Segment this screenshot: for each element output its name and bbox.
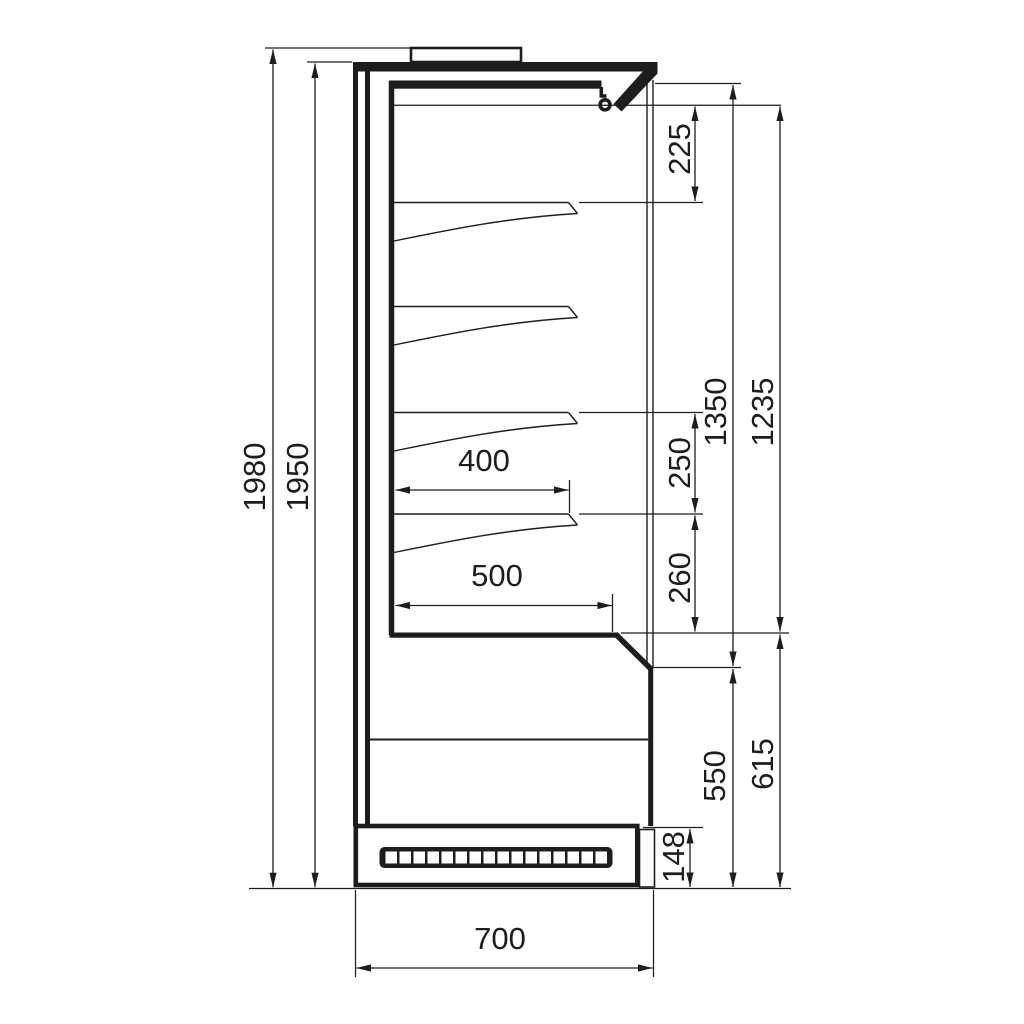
- grille-slot: [540, 852, 552, 864]
- dimension-overall-height: 1980: [237, 50, 273, 888]
- ventilation-grille: [380, 847, 613, 868]
- dim-label-shelf-spacing-upper: 250: [662, 437, 697, 489]
- interior-floor: [390, 633, 618, 638]
- dimension-overall-depth: 700: [357, 921, 653, 968]
- dim-label-overall-depth: 700: [474, 921, 526, 956]
- shelf-nose: [569, 514, 578, 525]
- grille-slot: [512, 852, 524, 864]
- shelf-nose: [569, 203, 578, 214]
- dimension-opening-height: 1350: [698, 85, 733, 666]
- dimension-canopy-clearance: 225: [662, 107, 697, 202]
- dim-label-plinth-height: 148: [656, 831, 691, 883]
- dimension-shelf-spacing-lower: 260: [662, 516, 697, 632]
- dim-label-base-height-outer: 615: [745, 738, 780, 790]
- dimension-body-height: 1950: [280, 64, 315, 888]
- grille-slot: [400, 852, 412, 864]
- dim-label-canopy-clearance: 225: [662, 123, 697, 175]
- dimension-base-shelf-depth: 500: [396, 558, 613, 606]
- shelf-nose: [569, 413, 578, 424]
- shelf-1: [394, 203, 578, 242]
- dim-label-shelf-depth: 400: [458, 443, 510, 478]
- technical-drawing-page: 1980 1950 225 250 260 1350 1235 550 615 …: [0, 0, 1024, 1024]
- grille-slot: [470, 852, 482, 864]
- grille-slot: [554, 852, 566, 864]
- dimension-base-height-outer: 615: [745, 635, 780, 888]
- shelf-2: [394, 307, 578, 346]
- canopy: [389, 81, 602, 89]
- shelf-bracket-curve: [394, 525, 578, 553]
- dim-label-overall-height: 1980: [237, 443, 272, 512]
- grille-slot: [526, 852, 538, 864]
- grille-slot: [484, 852, 496, 864]
- grille-slot: [582, 852, 594, 864]
- dimension-plinth-height: 148: [656, 829, 691, 887]
- shelf-bracket-curve: [394, 318, 578, 346]
- dim-label-shelf-spacing-lower: 260: [662, 552, 697, 604]
- dim-label-opening-height: 1350: [698, 378, 733, 447]
- grille-slot: [568, 852, 580, 864]
- top-cap: [411, 48, 521, 62]
- floor-front-slant: [616, 634, 652, 670]
- shelf-bracket-curve: [394, 214, 578, 242]
- cabinet-section-drawing: 1980 1950 225 250 260 1350 1235 550 615 …: [0, 0, 1024, 1024]
- dim-label-base-height-inner: 550: [697, 750, 732, 802]
- plinth-front-strip: [640, 830, 655, 888]
- grille-slot: [428, 852, 440, 864]
- grille-slot: [498, 852, 510, 864]
- shelf-4: [394, 514, 578, 553]
- dim-label-interior-height: 1235: [745, 378, 780, 447]
- dimension-base-height-inner: 550: [697, 669, 733, 887]
- dimension-shelf-depth: 400: [396, 443, 569, 490]
- air-outlet-step: [601, 87, 606, 96]
- grille-slot: [386, 852, 398, 864]
- grille-slot: [442, 852, 454, 864]
- dim-label-base-shelf-depth: 500: [471, 558, 523, 593]
- dimension-interior-height: 1235: [745, 107, 780, 632]
- dim-label-body-height: 1950: [280, 443, 315, 512]
- grille-slot: [596, 852, 608, 864]
- grille-slot: [456, 852, 468, 864]
- top-panel: [353, 62, 658, 72]
- shelf-nose: [569, 307, 578, 318]
- dimension-shelf-spacing-upper: 250: [662, 414, 697, 513]
- grille-slot: [414, 852, 426, 864]
